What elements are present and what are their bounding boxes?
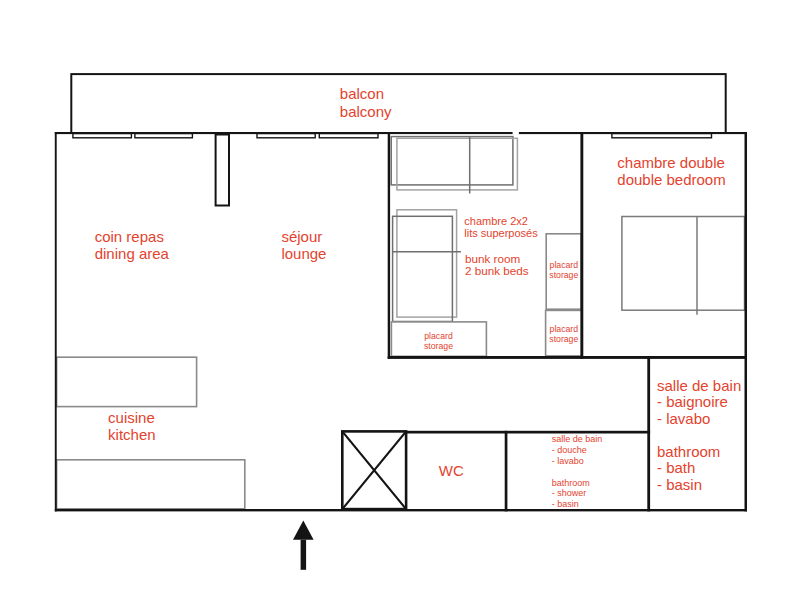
svg-text:kitchen: kitchen [108, 426, 156, 443]
svg-text:balcony: balcony [340, 103, 392, 120]
svg-text:lits superposés: lits superposés [464, 227, 538, 239]
svg-text:salle de bain: salle de bain [657, 377, 741, 394]
svg-text:placard: placard [424, 331, 453, 341]
svg-text:storage: storage [549, 334, 578, 344]
svg-text:salle de bain: salle de bain [552, 434, 603, 444]
svg-text:- douche: - douche [552, 445, 587, 455]
svg-text:- shower: - shower [552, 488, 587, 498]
svg-text:bunk room: bunk room [465, 252, 520, 265]
svg-text:bathroom: bathroom [552, 478, 590, 488]
svg-text:storage: storage [549, 270, 578, 280]
svg-text:- lavabo: - lavabo [657, 410, 710, 427]
svg-text:dining area: dining area [95, 245, 170, 262]
svg-text:chambre double: chambre double [617, 154, 725, 171]
svg-text:double bedroom: double bedroom [617, 171, 725, 188]
svg-text:WC: WC [439, 462, 464, 479]
svg-text:chambre 2x2: chambre 2x2 [464, 215, 528, 227]
svg-text:storage: storage [424, 341, 453, 351]
svg-text:- basin: - basin [657, 476, 702, 493]
svg-text:2 bunk beds: 2 bunk beds [465, 264, 529, 277]
svg-text:balcon: balcon [340, 85, 384, 102]
svg-text:placard: placard [550, 260, 579, 270]
svg-text:- bath: - bath [657, 459, 695, 476]
svg-text:- lavabo: - lavabo [552, 456, 584, 466]
svg-text:- baignoire: - baignoire [657, 393, 728, 410]
svg-text:séjour: séjour [281, 228, 322, 245]
svg-text:placard: placard [550, 324, 579, 334]
svg-text:bathroom: bathroom [657, 443, 720, 460]
svg-text:coin repas: coin repas [95, 228, 164, 245]
svg-text:lounge: lounge [281, 245, 326, 262]
svg-text:cuisine: cuisine [108, 409, 155, 426]
svg-text:- basin: - basin [552, 499, 579, 509]
